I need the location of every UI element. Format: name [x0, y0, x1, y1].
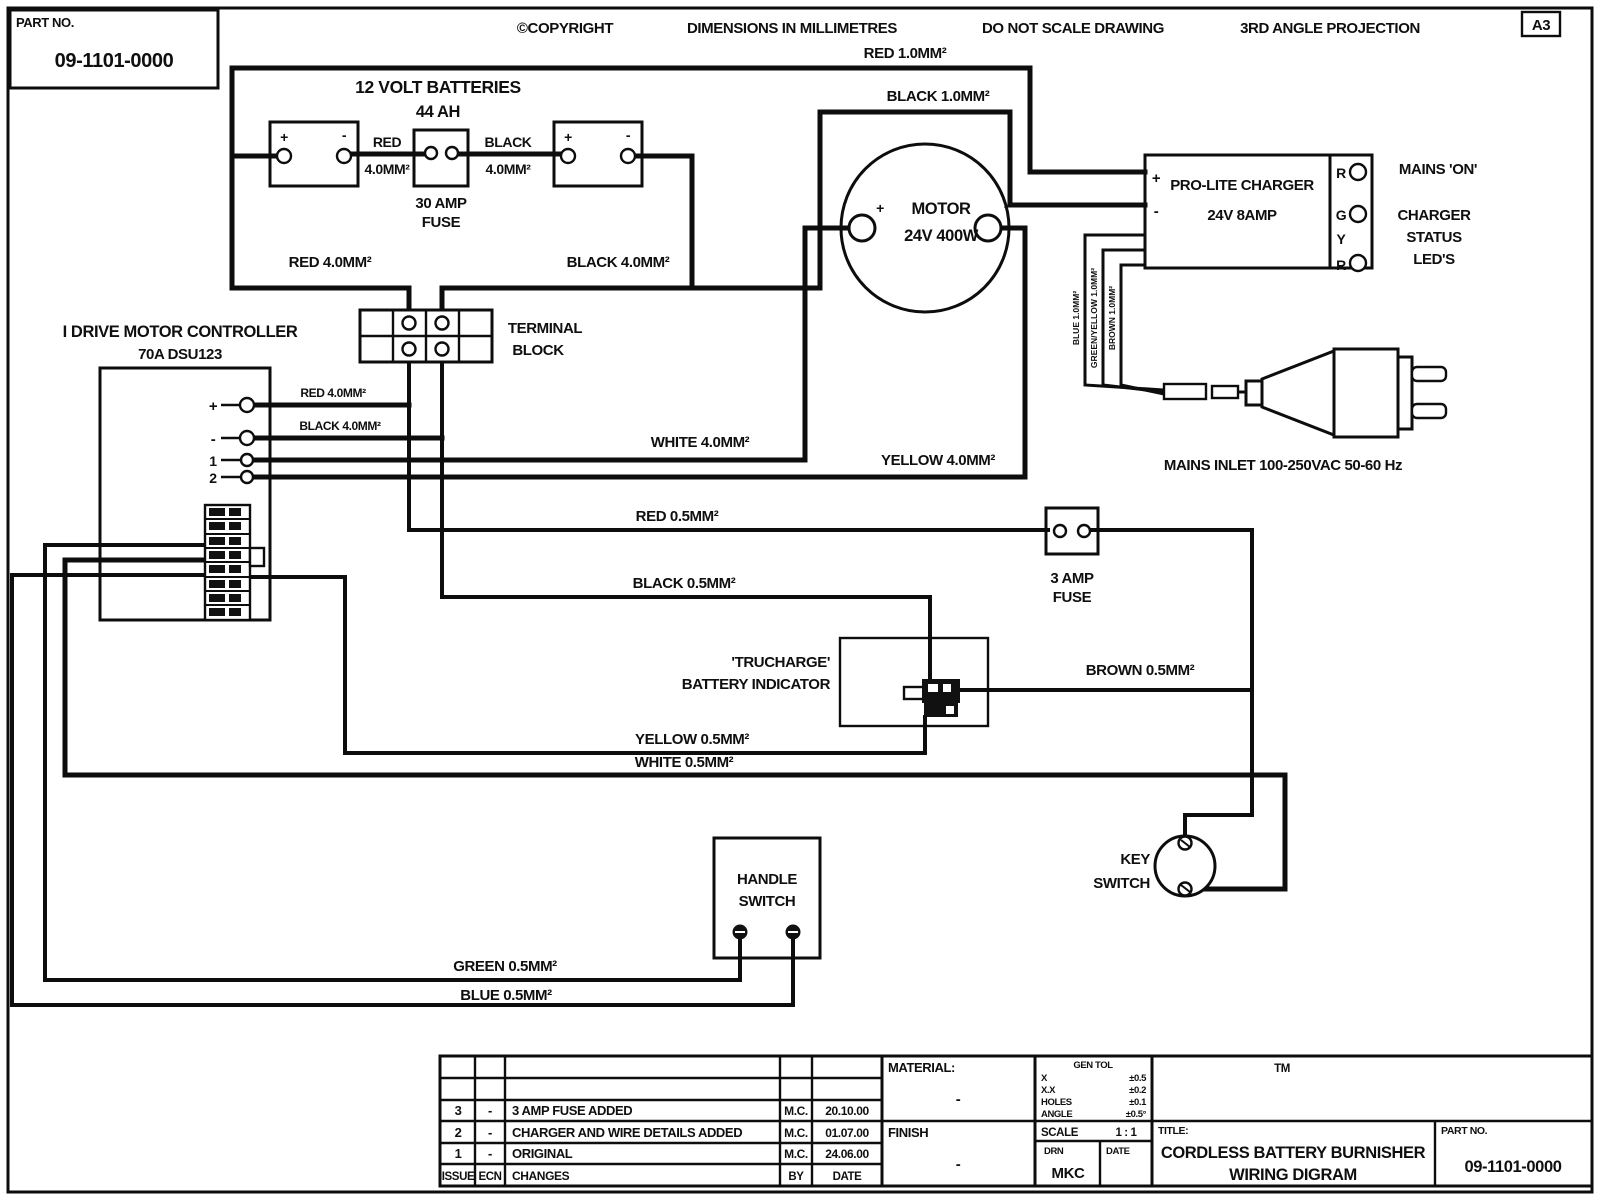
- charger-led-r2: R: [1336, 257, 1346, 273]
- rev-ecn: -: [488, 1103, 492, 1118]
- link-black-size: 4.0MM²: [485, 161, 531, 177]
- tol-header: GEN TOL: [1073, 1060, 1113, 1071]
- charger-led-y: Y: [1337, 231, 1347, 247]
- title-label: TITLE:: [1158, 1125, 1188, 1137]
- controller-subtitle: 70A DSU123: [138, 346, 222, 363]
- motor-name: MOTOR: [911, 200, 971, 218]
- part-cell-value: 09-1101-0000: [1464, 1158, 1561, 1176]
- mains-core-label-blue: BLUE 1.0MM²: [1071, 291, 1081, 345]
- charger-minus: -: [1154, 203, 1159, 220]
- controller-term-1: 1: [209, 453, 217, 469]
- rev-header-changes: CHANGES: [512, 1169, 570, 1183]
- diagram-canvas: PART NO. 09-1101-0000 ©COPYRIGHT DIMENSI…: [0, 0, 1600, 1200]
- copyright-note: ©COPYRIGHT: [517, 20, 613, 37]
- key-switch: [1155, 836, 1215, 896]
- rev-header-issue: ISSUE: [442, 1171, 475, 1183]
- terminal-block-label-1: TERMINAL: [508, 320, 583, 337]
- wire-label-white-05mm: WHITE 0.5MM²: [635, 754, 734, 771]
- fuse3-terminal: [1078, 525, 1090, 537]
- mains-on-label: MAINS 'ON': [1399, 161, 1477, 178]
- wire-label-black-4mm-ctrl: BLACK 4.0MM²: [299, 419, 381, 433]
- plug-pin: [1412, 404, 1446, 418]
- mains-core-label-earth: GREEN/YELLOW 1.0MM²: [1089, 268, 1099, 368]
- wire-label-yellow-4mm: YELLOW 4.0MM²: [881, 452, 995, 469]
- drawing-title-1: CORDLESS BATTERY BURNISHER: [1161, 1144, 1426, 1162]
- charger-status-3: LED'S: [1413, 251, 1455, 268]
- motor-terminal-plus: [849, 215, 875, 241]
- controller-term-2: 2: [209, 470, 217, 486]
- charger-plus: +: [1152, 170, 1161, 187]
- rev-date: 20.10.00: [825, 1104, 869, 1118]
- controller-title: I DRIVE MOTOR CONTROLLER: [63, 323, 298, 341]
- tol-key: HOLES: [1041, 1097, 1072, 1108]
- b1-plus: +: [280, 129, 288, 145]
- indicator-label-2: BATTERY INDICATOR: [682, 676, 831, 693]
- charger-name: PRO-LITE CHARGER: [1170, 177, 1314, 194]
- tb-terminal: [403, 317, 416, 330]
- dimensions-note: DIMENSIONS IN MILLIMETRES: [687, 20, 897, 37]
- drn-label: DRN: [1044, 1146, 1064, 1157]
- sheet-size: A3: [1532, 17, 1550, 34]
- b2-plus: +: [564, 129, 572, 145]
- fuse3-label-1: 3 AMP: [1050, 570, 1094, 587]
- scale-label: SCALE: [1041, 1127, 1079, 1139]
- material-value: -: [956, 1091, 961, 1108]
- handle-switch-label-2: SWITCH: [739, 893, 796, 910]
- tol-val: ±0.2: [1129, 1085, 1146, 1096]
- terminal-block-label-2: BLOCK: [512, 342, 564, 359]
- finish-label: FINISH: [888, 1125, 928, 1140]
- wire-label-red-4mm-ctrl: RED 4.0MM²: [300, 386, 366, 400]
- link-red-label: RED: [373, 134, 402, 150]
- charger-led-r1: R: [1336, 165, 1346, 181]
- charger-led-g: G: [1336, 207, 1347, 223]
- rev-by: M.C.: [784, 1104, 808, 1118]
- key-switch-label-2: SWITCH: [1093, 875, 1150, 892]
- controller-term-plus: +: [209, 398, 218, 415]
- rev-header-by: BY: [788, 1171, 804, 1183]
- drn-value: MKC: [1052, 1165, 1086, 1182]
- scale-value: 1 : 1: [1115, 1127, 1137, 1139]
- mains-core-label-brown: BROWN 1.0MM²: [1107, 286, 1117, 350]
- batteries-title: 12 VOLT BATTERIES: [355, 77, 521, 97]
- logo-tm: TM: [1274, 1063, 1290, 1075]
- b2-minus: -: [626, 127, 631, 143]
- tb-terminal: [436, 317, 449, 330]
- wiring-diagram-sheet: PART NO. 09-1101-0000 ©COPYRIGHT DIMENSI…: [0, 0, 1600, 1200]
- fuse-30amp: [414, 130, 468, 186]
- charger-rating: 24V 8AMP: [1207, 207, 1277, 224]
- title-block: 3 - 3 AMP FUSE ADDED M.C. 20.10.00 2 - C…: [440, 1056, 1592, 1186]
- motor-plus: +: [876, 200, 884, 216]
- tol-key: X.X: [1041, 1085, 1056, 1096]
- led-red: [1350, 255, 1366, 271]
- key-switch-label-1: KEY: [1120, 851, 1150, 868]
- rev-issue: 3: [455, 1103, 462, 1118]
- rev-change: CHARGER AND WIRE DETAILS ADDED: [512, 1125, 742, 1140]
- cable-ferrule: [1164, 384, 1206, 399]
- link-red-size: 4.0MM²: [364, 161, 410, 177]
- no-scale-note: DO NOT SCALE DRAWING: [982, 20, 1164, 37]
- rev-by: M.C.: [784, 1147, 808, 1161]
- plug-pin: [1412, 367, 1446, 381]
- led-mains: [1350, 164, 1366, 180]
- cable-ferrule: [1212, 386, 1238, 398]
- rev-date: 01.07.00: [825, 1126, 869, 1140]
- date-cell-label: DATE: [1106, 1146, 1130, 1157]
- batteries-capacity: 44 AH: [416, 103, 460, 121]
- wire-label-blue-05mm: BLUE 0.5MM²: [460, 987, 552, 1004]
- indicator-body: [840, 638, 988, 726]
- tol-val: ±0.1: [1129, 1097, 1147, 1108]
- mains-inlet-label: MAINS INLET 100-250VAC 50-60 Hz: [1164, 457, 1402, 474]
- motor-rating: 24V 400W: [904, 227, 979, 245]
- wire-label-red-05mm: RED 0.5MM²: [636, 508, 719, 525]
- terminal-block: [360, 310, 492, 362]
- wire-label-black-05mm: BLACK 0.5MM²: [633, 575, 736, 592]
- wire-label-yellow-05mm: YELLOW 0.5MM²: [635, 731, 749, 748]
- fuse3-label-2: FUSE: [1053, 589, 1092, 606]
- wire-label-white-4mm: WHITE 4.0MM²: [651, 434, 750, 451]
- wire-label-black-1mm: BLACK 1.0MM²: [887, 88, 990, 105]
- wire-label-brown-05mm: BROWN 0.5MM²: [1086, 662, 1195, 679]
- wire-label-black-4mm-batt: BLACK 4.0MM²: [567, 254, 670, 271]
- fuse30-label-2: FUSE: [422, 214, 461, 231]
- rev-issue: 2: [455, 1125, 462, 1140]
- drawing-title-2: WIRING DIGRAM: [1229, 1166, 1357, 1184]
- fuse30-label-1: 30 AMP: [415, 195, 467, 212]
- rev-ecn: -: [488, 1146, 492, 1161]
- fuse3-terminal: [1054, 525, 1066, 537]
- rev-ecn: -: [488, 1125, 492, 1140]
- projection-note: 3RD ANGLE PROJECTION: [1240, 20, 1420, 37]
- part-no-label: PART NO.: [16, 15, 74, 30]
- part-no-value: 09-1101-0000: [55, 50, 174, 72]
- charger-status-2: STATUS: [1406, 229, 1462, 246]
- led-green: [1350, 206, 1366, 222]
- motor-terminal-minus: [975, 215, 1001, 241]
- controller-term-minus: -: [211, 431, 216, 448]
- rev-change: ORIGINAL: [512, 1146, 573, 1161]
- b1-minus: -: [342, 127, 347, 143]
- tol-key: ANGLE: [1041, 1109, 1072, 1120]
- rev-header-ecn: ECN: [478, 1171, 501, 1183]
- handle-switch-label-1: HANDLE: [737, 871, 797, 888]
- part-cell-label: PART NO.: [1441, 1125, 1488, 1137]
- rev-change: 3 AMP FUSE ADDED: [512, 1103, 632, 1118]
- wire-label-red-4mm-batt: RED 4.0MM²: [289, 254, 372, 271]
- finish-value: -: [956, 1156, 961, 1173]
- rev-by: M.C.: [784, 1126, 808, 1140]
- link-black-label: BLACK: [485, 134, 532, 150]
- indicator-label-1: 'TRUCHARGE': [731, 654, 830, 671]
- motor-minus: -: [1004, 198, 1009, 214]
- rev-header-date: DATE: [833, 1171, 863, 1183]
- tol-val: ±0.5: [1129, 1073, 1147, 1084]
- tb-terminal: [436, 343, 449, 356]
- material-label: MATERIAL:: [888, 1060, 955, 1075]
- rev-date: 24.06.00: [825, 1147, 869, 1161]
- tb-terminal: [403, 343, 416, 356]
- charger-status-1: CHARGER: [1397, 207, 1471, 224]
- wire-label-green-05mm: GREEN 0.5MM²: [453, 958, 557, 975]
- wire-label-red-1mm: RED 1.0MM²: [864, 45, 947, 62]
- tol-val: ±0.5°: [1126, 1109, 1147, 1120]
- rev-issue: 1: [455, 1146, 462, 1161]
